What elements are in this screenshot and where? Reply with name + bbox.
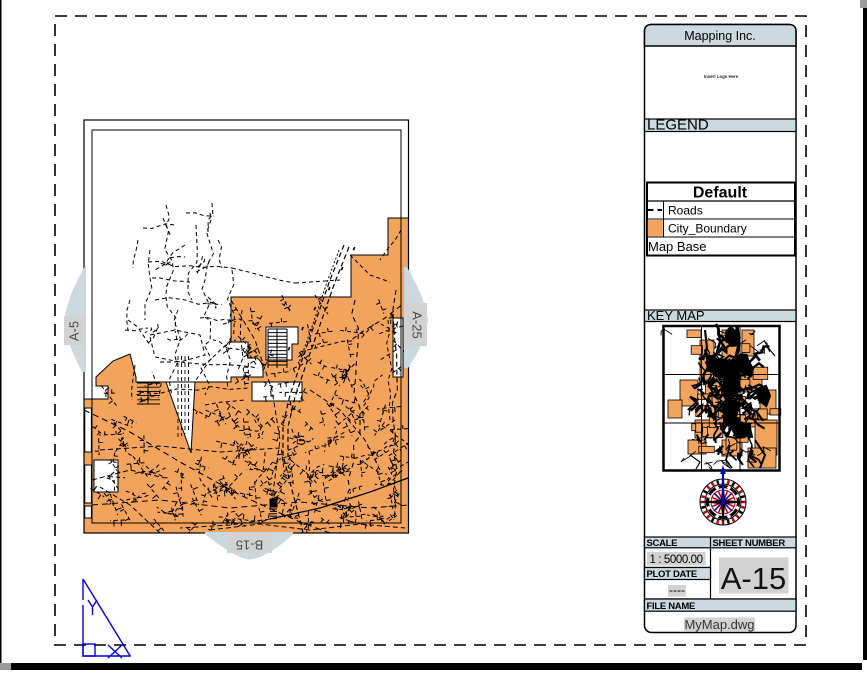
svg-text:FILE NAME: FILE NAME bbox=[647, 601, 696, 612]
svg-text:A-15: A-15 bbox=[721, 561, 786, 596]
svg-text:Map Base: Map Base bbox=[648, 239, 707, 254]
svg-text:Roads: Roads bbox=[668, 204, 703, 218]
svg-text:B-15: B-15 bbox=[236, 538, 263, 553]
svg-text:Default: Default bbox=[693, 185, 748, 202]
svg-text:MyMap.dwg: MyMap.dwg bbox=[684, 617, 754, 632]
svg-text:A-25: A-25 bbox=[410, 311, 425, 338]
svg-text:Insert Logo Here: Insert Logo Here bbox=[704, 74, 739, 79]
svg-text:KEY MAP: KEY MAP bbox=[647, 308, 705, 323]
svg-text:PLOT DATE: PLOT DATE bbox=[647, 569, 697, 580]
svg-text:SHEET NUMBER: SHEET NUMBER bbox=[713, 538, 786, 549]
svg-text:City_Boundary: City_Boundary bbox=[668, 222, 747, 236]
svg-text:1 : 5000.00: 1 : 5000.00 bbox=[650, 554, 703, 566]
svg-text:A-5: A-5 bbox=[66, 321, 81, 341]
svg-text:LEGEND: LEGEND bbox=[647, 117, 709, 134]
svg-text:Mapping Inc.: Mapping Inc. bbox=[684, 29, 756, 43]
svg-text:----: ---- bbox=[669, 583, 685, 597]
svg-text:SCALE: SCALE bbox=[647, 538, 678, 549]
